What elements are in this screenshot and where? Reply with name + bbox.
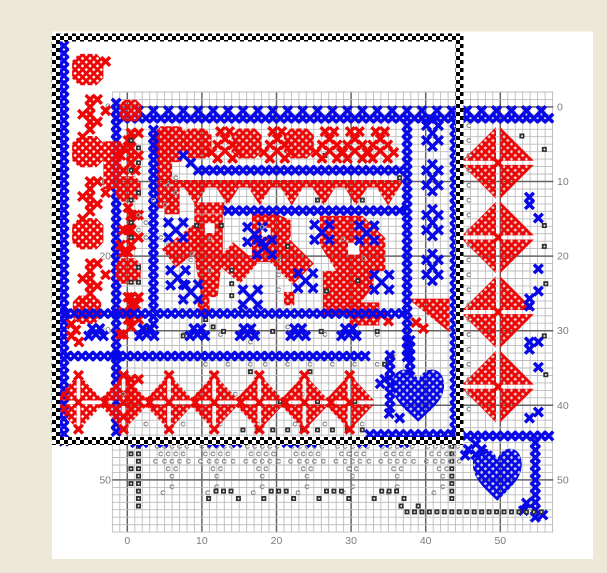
svg-text:10: 10 — [557, 176, 569, 188]
svg-text:30: 30 — [557, 325, 569, 337]
svg-text:20: 20 — [557, 251, 569, 263]
svg-text:20: 20 — [271, 535, 283, 547]
svg-text:40: 40 — [557, 400, 569, 412]
svg-text:50: 50 — [494, 535, 506, 547]
svg-text:0: 0 — [124, 535, 130, 547]
svg-text:0: 0 — [557, 101, 563, 113]
svg-text:50: 50 — [99, 474, 111, 486]
svg-text:50: 50 — [557, 474, 569, 486]
svg-text:30: 30 — [345, 535, 357, 547]
svg-text:40: 40 — [420, 535, 432, 547]
svg-text:10: 10 — [196, 535, 208, 547]
